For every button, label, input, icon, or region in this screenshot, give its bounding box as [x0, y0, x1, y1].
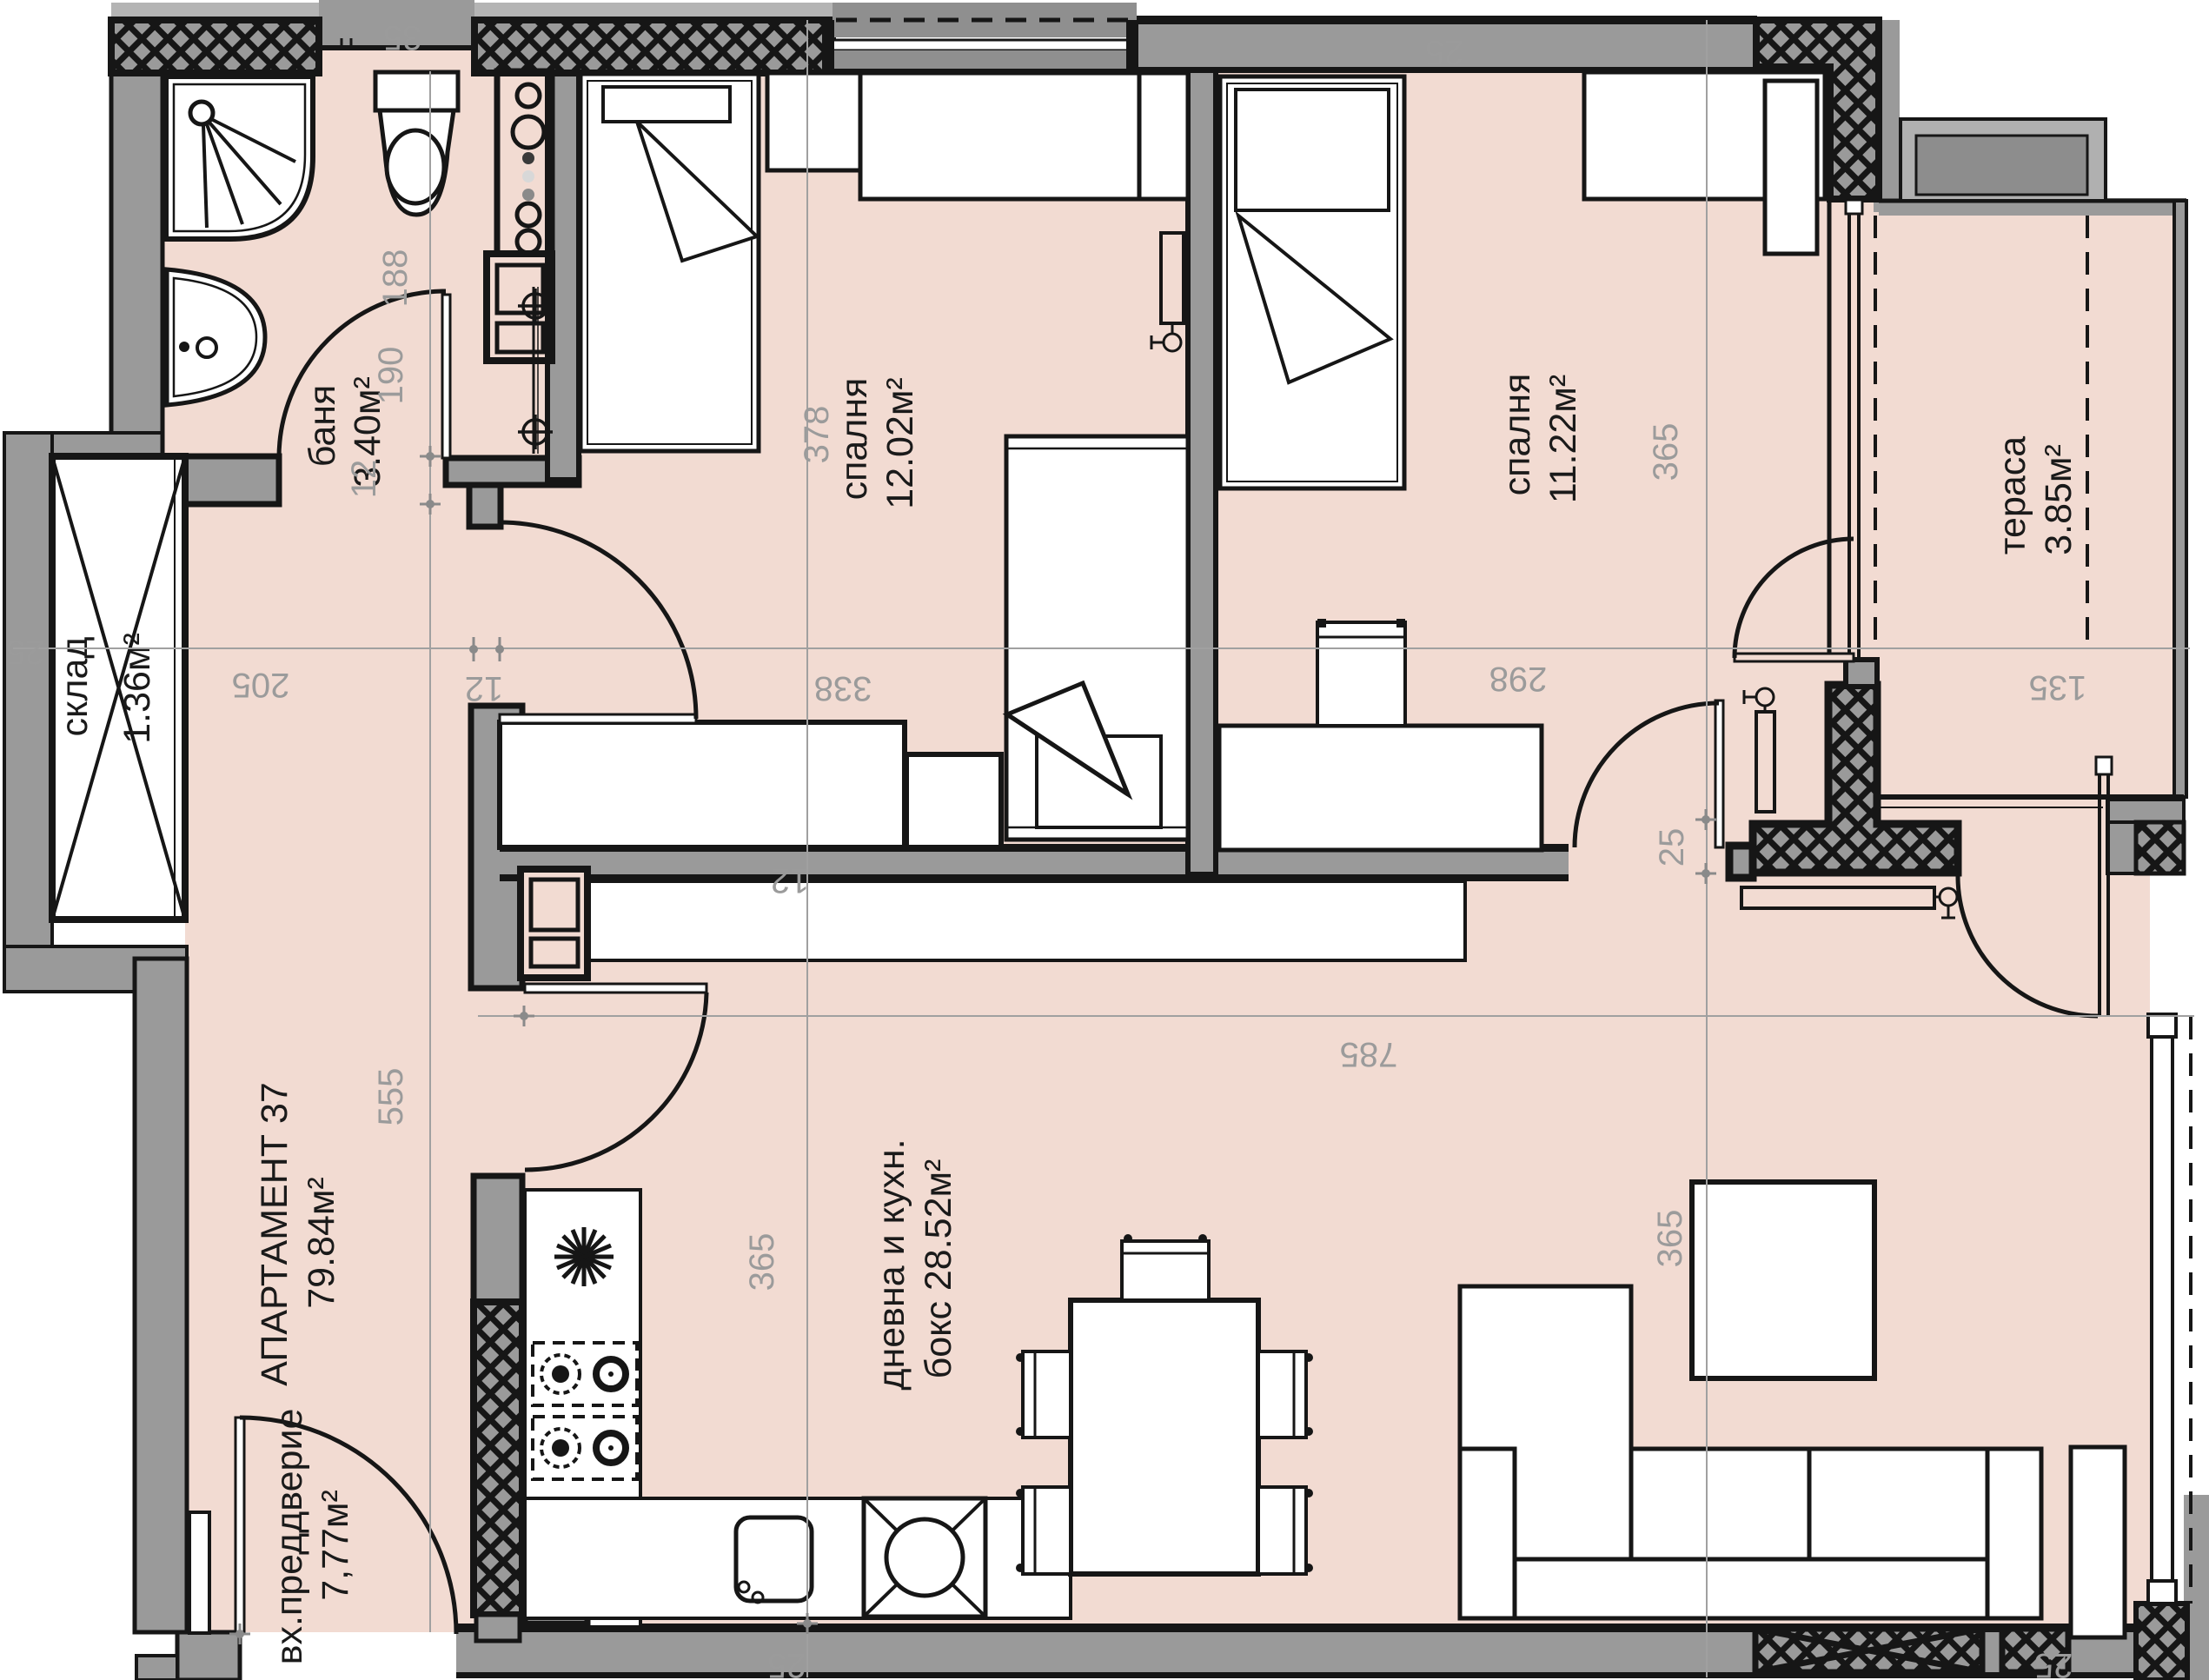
svg-text:25: 25: [1653, 828, 1691, 867]
svg-text:190: 190: [372, 347, 410, 405]
svg-text:25: 25: [2034, 1646, 2073, 1680]
svg-text:спалня: спалня: [833, 378, 875, 501]
svg-text:298: 298: [1489, 660, 1548, 698]
svg-text:7,77м²: 7,77м²: [315, 1490, 356, 1601]
svg-text:785: 785: [1340, 1035, 1398, 1073]
svg-text:11.22м²: 11.22м²: [1542, 375, 1584, 503]
svg-text:дневна и кухн.: дневна и кухн.: [871, 1139, 912, 1390]
svg-text:365: 365: [1651, 1210, 1689, 1268]
svg-text:вх.преддверие: вх.преддверие: [269, 1409, 310, 1665]
svg-text:35: 35: [383, 18, 422, 56]
svg-text:12.02м²: 12.02м²: [879, 377, 921, 509]
svg-text:1.36м²: 1.36м²: [116, 633, 158, 744]
svg-text:12: 12: [345, 460, 383, 499]
svg-text:баня: баня: [302, 385, 343, 468]
svg-text:25: 25: [1425, 33, 1464, 71]
svg-text:378: 378: [798, 406, 836, 464]
svg-text:135: 135: [2029, 668, 2087, 707]
svg-text:тераса: тераса: [1992, 436, 2033, 554]
svg-text:365: 365: [1647, 423, 1685, 481]
svg-text:12: 12: [465, 669, 504, 707]
svg-text:спалня: спалня: [1496, 374, 1538, 496]
svg-text:188: 188: [376, 249, 415, 308]
svg-text:79.84м²: 79.84м²: [301, 1177, 342, 1309]
svg-text:склад: склад: [54, 637, 96, 737]
svg-text:338: 338: [814, 669, 872, 707]
svg-text:12: 12: [771, 861, 810, 900]
svg-text:25: 25: [6, 633, 45, 671]
svg-text:25: 25: [767, 1646, 806, 1680]
svg-text:АПАРТАМЕНТ 37: АПАРТАМЕНТ 37: [254, 1082, 295, 1386]
svg-text:3.85м²: 3.85м²: [2038, 444, 2080, 555]
svg-text:бокс 28.52м²: бокс 28.52м²: [918, 1159, 959, 1379]
svg-text:365: 365: [743, 1233, 781, 1292]
svg-text:205: 205: [232, 666, 290, 704]
svg-text:555: 555: [372, 1068, 410, 1126]
